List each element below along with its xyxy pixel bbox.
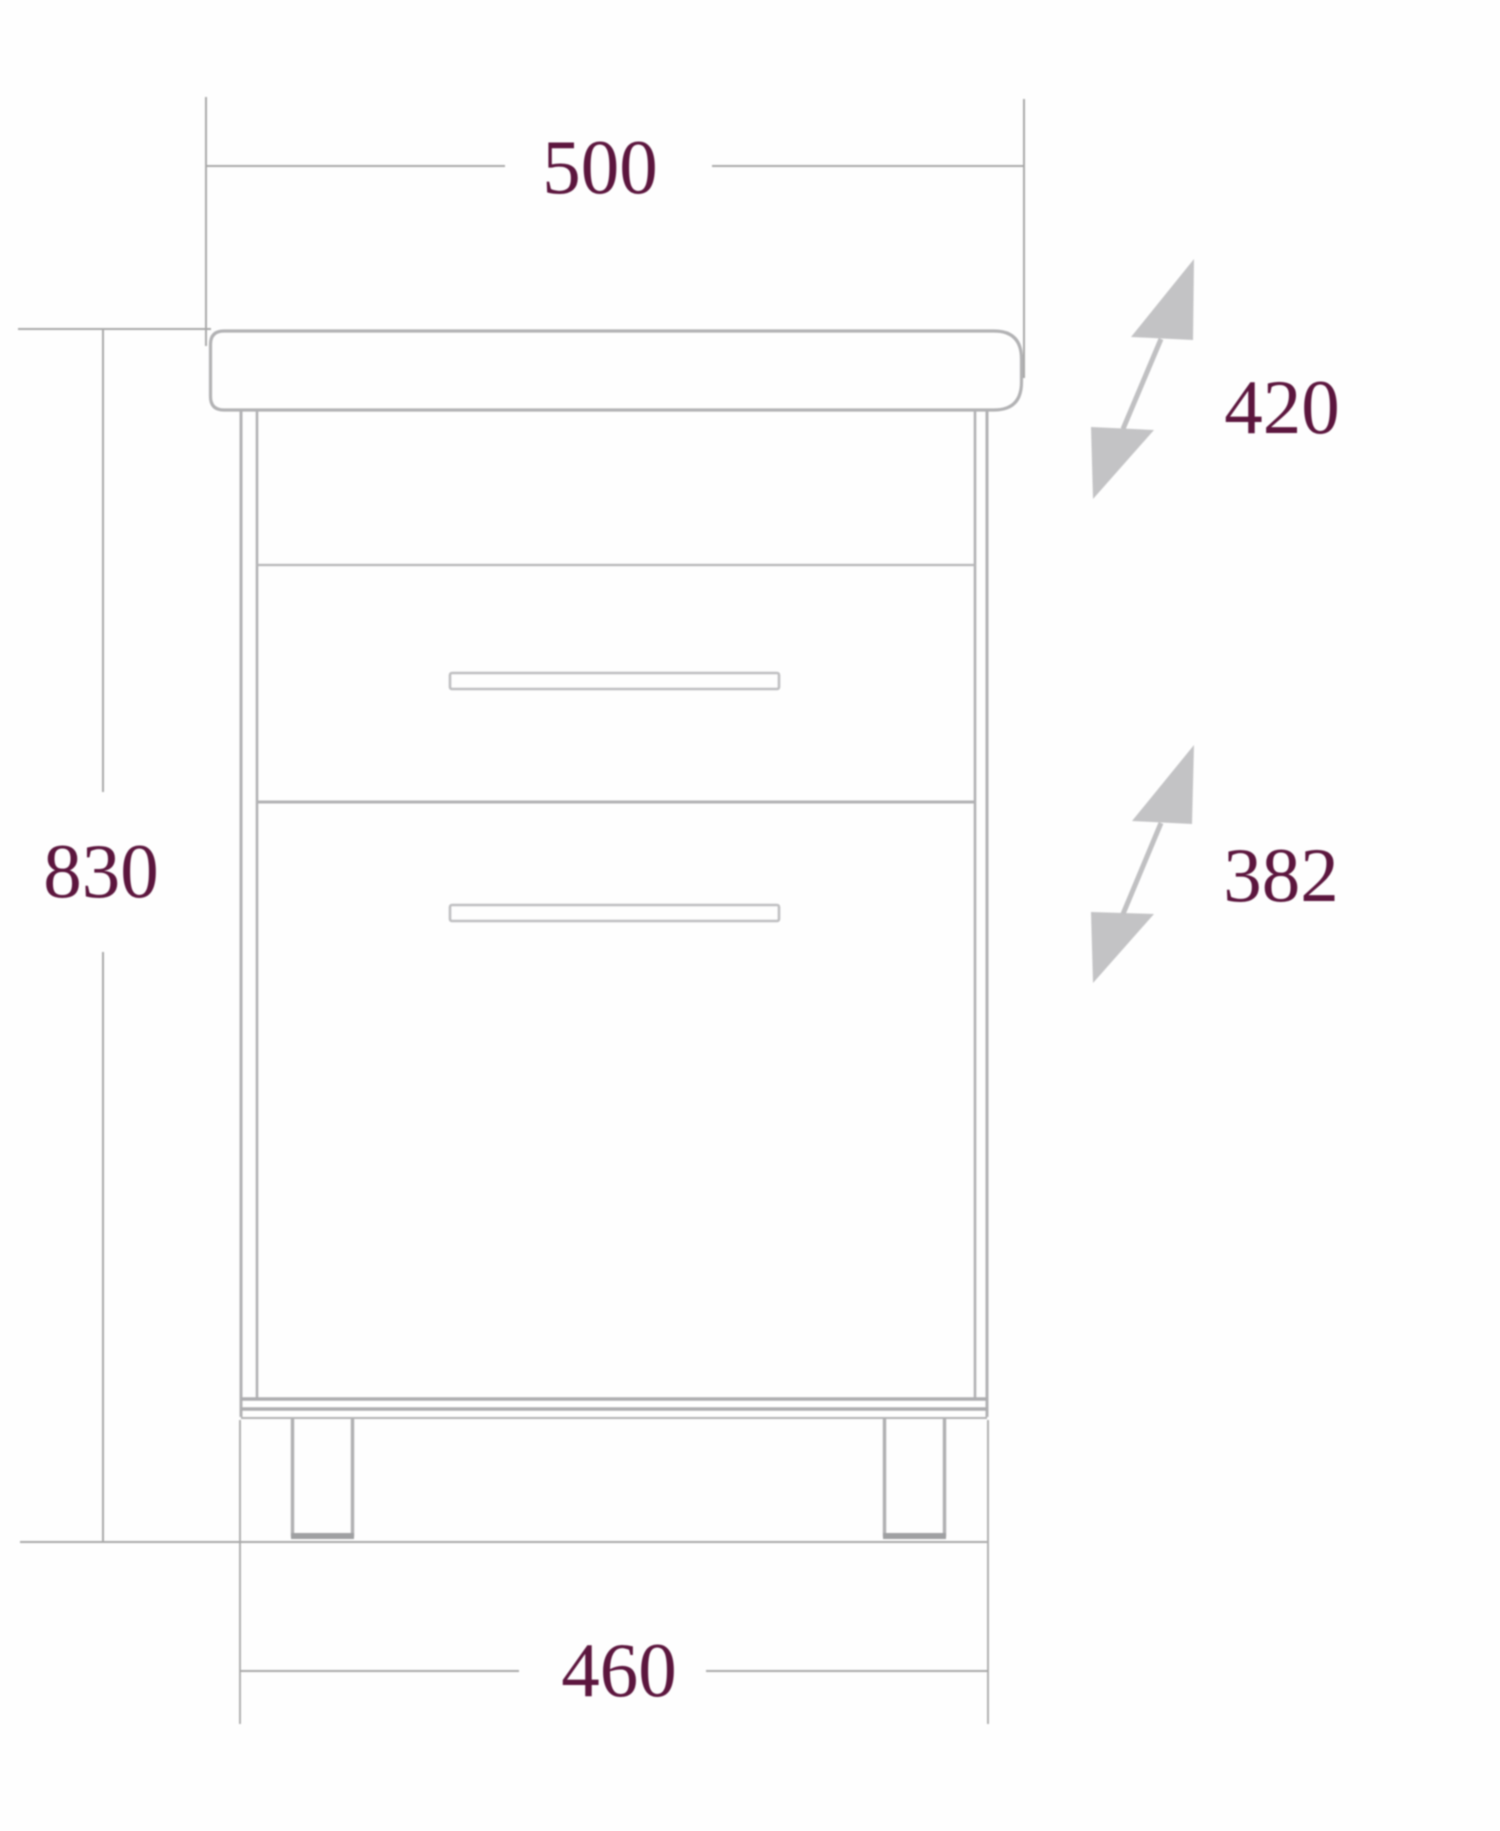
svg-text:420: 420 — [1224, 364, 1340, 450]
svg-text:500: 500 — [542, 124, 658, 210]
svg-text:830: 830 — [43, 828, 159, 914]
svg-text:382: 382 — [1223, 832, 1339, 918]
svg-text:460: 460 — [561, 1627, 677, 1713]
